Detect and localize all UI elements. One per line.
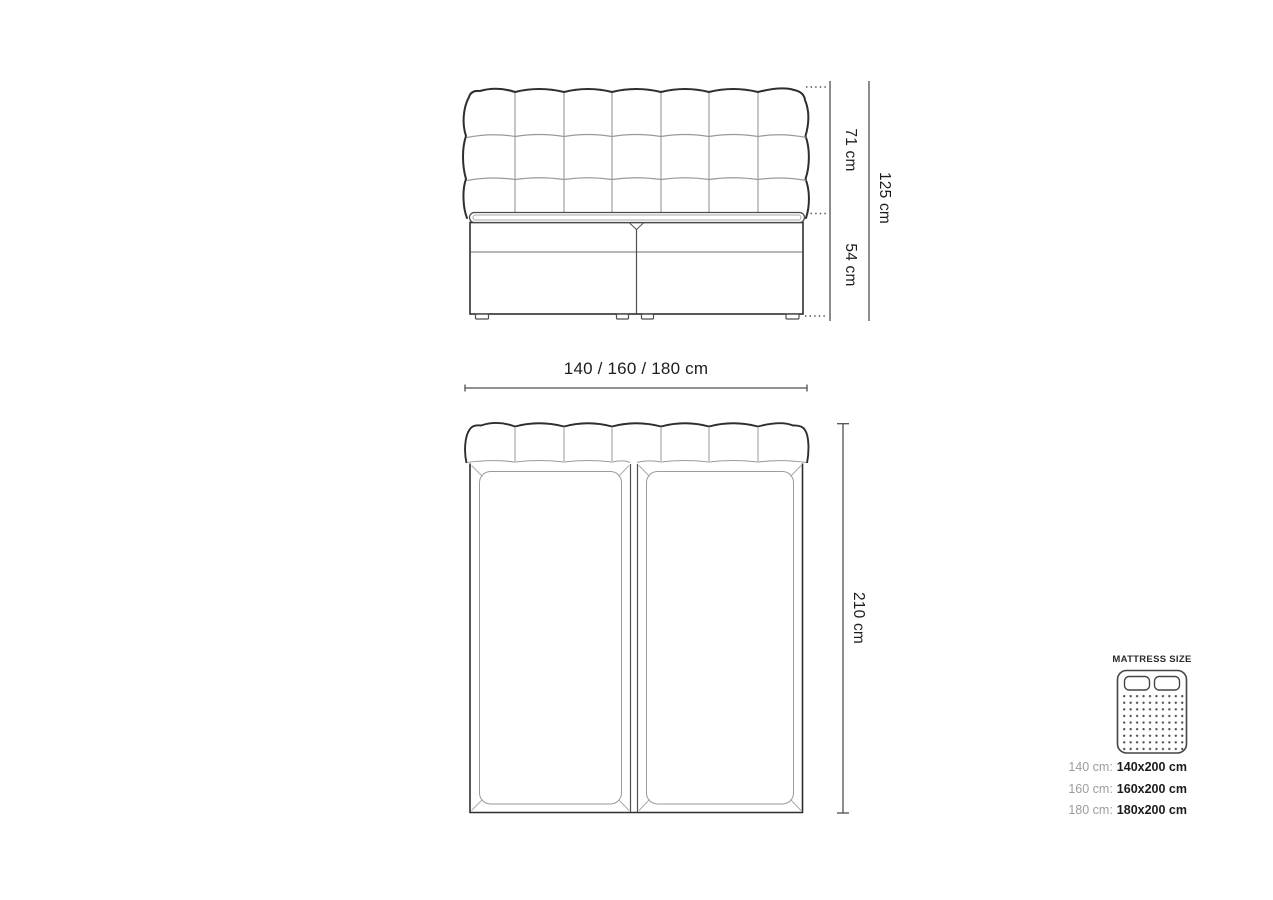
top-view-drawing	[465, 385, 849, 814]
legend-row: 160 cm:160x200 cm	[1068, 779, 1187, 801]
dim-width-label: 140 / 160 / 180 cm	[564, 359, 708, 379]
legend-row: 180 cm:180x200 cm	[1068, 800, 1187, 822]
legend-dimensions-value: 180x200 cm	[1117, 803, 1187, 817]
dim-total-height-label: 125 cm	[875, 172, 893, 224]
mattress-size-title: MATTRESS SIZE	[1112, 654, 1191, 665]
dim-headboard-height-label: 71 cm	[841, 128, 859, 171]
bed-foot	[642, 314, 654, 319]
dim-length-label: 210 cm	[849, 592, 867, 644]
bed-foot	[786, 314, 799, 319]
front-view-drawing	[463, 81, 869, 321]
mattress-size-legend: 140 cm:140x200 cm 160 cm:160x200 cm 180 …	[1068, 757, 1187, 822]
bed-foot	[476, 314, 489, 319]
mattress-frame-outline	[470, 464, 803, 813]
legend-size-label: 140 cm:	[1068, 760, 1112, 774]
legend-size-label: 180 cm:	[1068, 803, 1112, 817]
dim-base-height-label: 54 cm	[841, 243, 859, 286]
legend-dimensions-value: 160x200 cm	[1117, 782, 1187, 796]
mattress-size-icon	[1118, 671, 1187, 754]
legend-size-label: 160 cm:	[1068, 782, 1112, 796]
bed-foot	[617, 314, 629, 319]
bed-rail-outline	[470, 213, 805, 223]
mattress-icon-dot-grid	[1123, 695, 1184, 752]
legend-row: 140 cm:140x200 cm	[1068, 757, 1187, 779]
headboard-top-outline	[465, 423, 808, 463]
legend-dimensions-value: 140x200 cm	[1117, 760, 1187, 774]
bed-dimensions-diagram: 71 cm 54 cm 125 cm 140 / 160 / 180 cm 21…	[0, 0, 1273, 900]
